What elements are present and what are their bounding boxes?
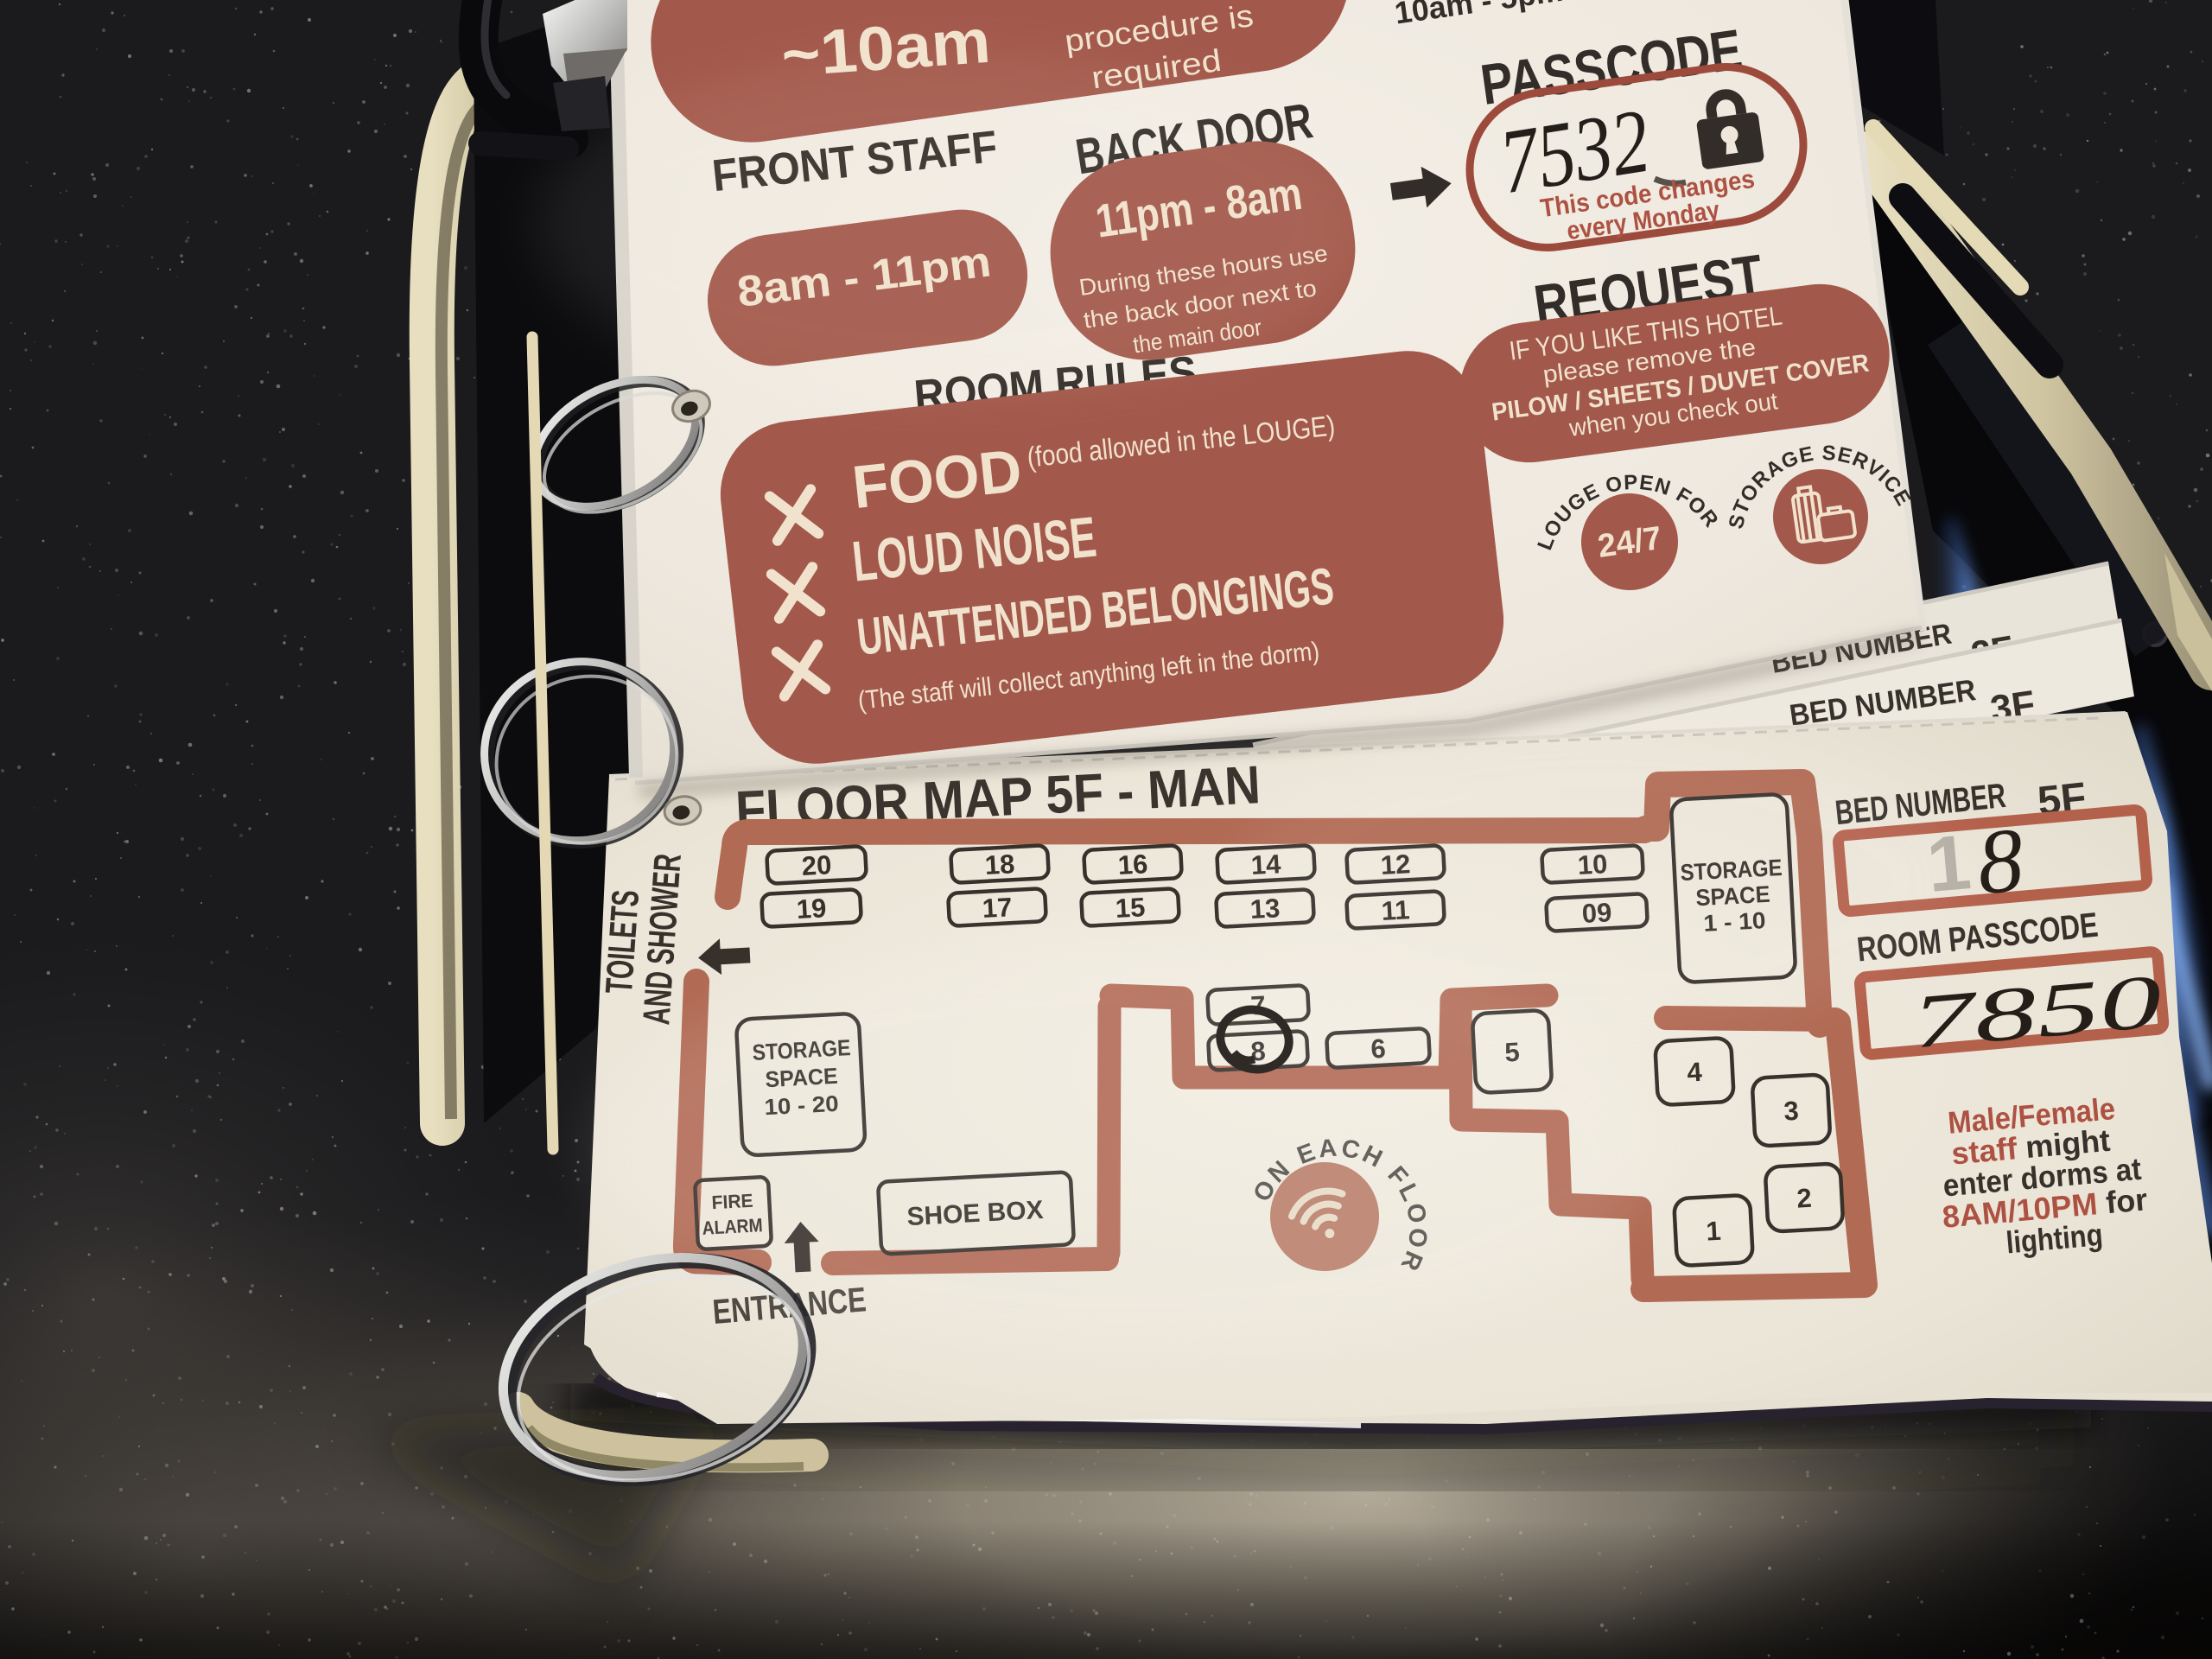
svg-text:8: 8	[1973, 809, 2027, 913]
svg-text:1: 1	[1706, 1216, 1722, 1247]
svg-text:3: 3	[1783, 1096, 1800, 1127]
svg-text:2: 2	[1796, 1183, 1813, 1214]
svg-text:16: 16	[1117, 849, 1148, 880]
svg-text:15: 15	[1115, 892, 1146, 924]
svg-text:4: 4	[1687, 1057, 1704, 1088]
svg-text:20: 20	[801, 849, 832, 881]
svg-text:18: 18	[984, 849, 1015, 880]
svg-text:19: 19	[796, 893, 827, 925]
svg-text:17: 17	[982, 892, 1013, 924]
